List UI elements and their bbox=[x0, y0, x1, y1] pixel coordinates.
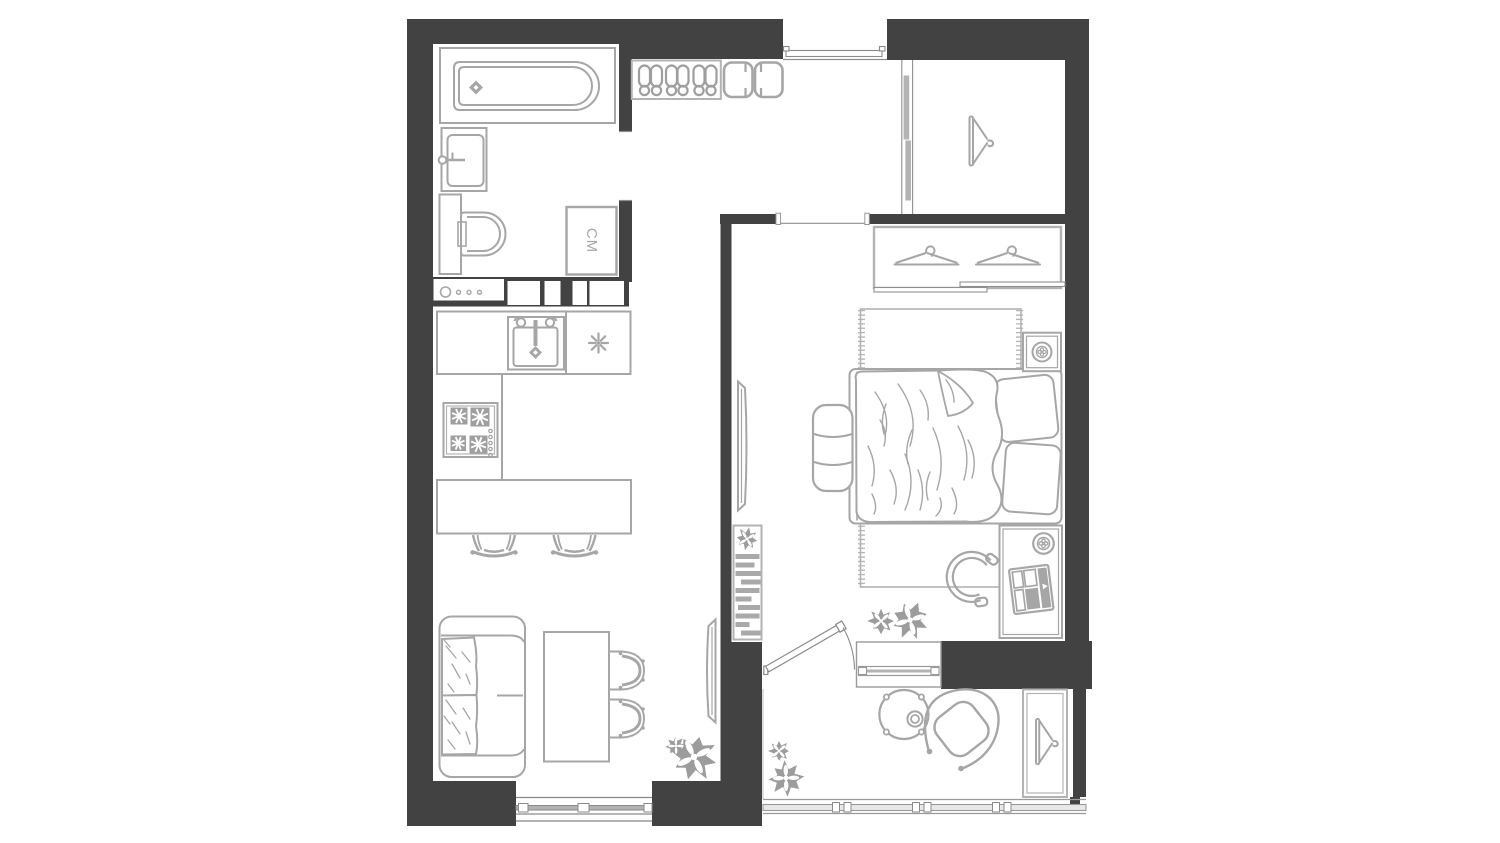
svg-text:СМ: СМ bbox=[583, 228, 600, 253]
